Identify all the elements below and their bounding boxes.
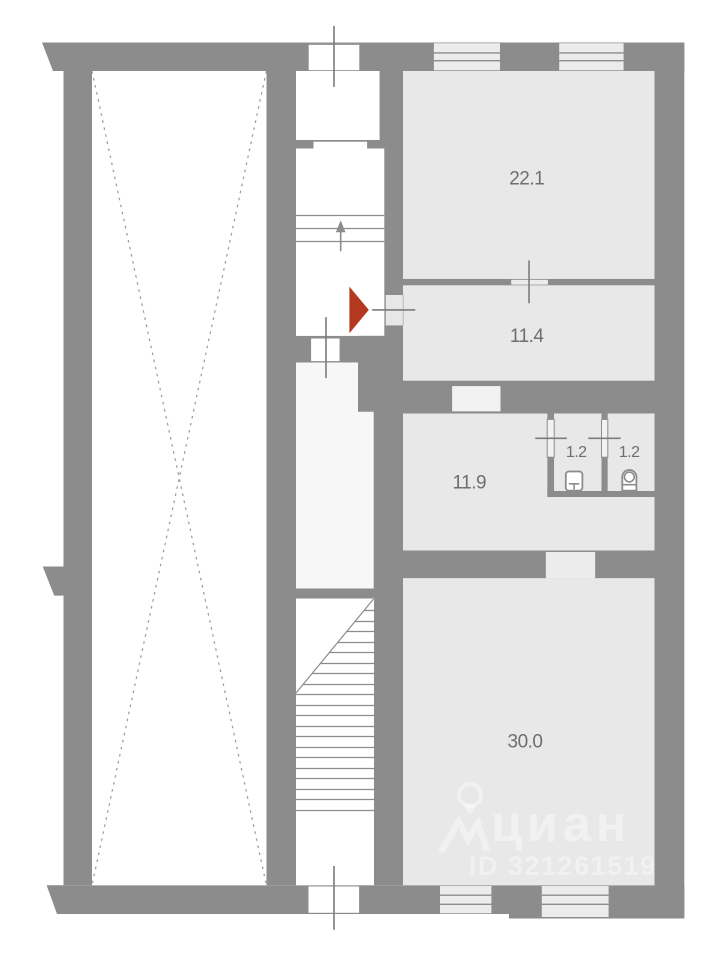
svg-text:ID 321261519: ID 321261519 — [469, 851, 657, 881]
svg-text:30.0: 30.0 — [508, 732, 543, 753]
svg-text:11.9: 11.9 — [453, 473, 487, 494]
svg-text:1.2: 1.2 — [566, 444, 587, 461]
svg-text:22.1: 22.1 — [509, 169, 544, 190]
svg-text:1.2: 1.2 — [619, 444, 640, 461]
svg-text:циан: циан — [491, 795, 631, 852]
svg-text:11.4: 11.4 — [510, 326, 545, 347]
